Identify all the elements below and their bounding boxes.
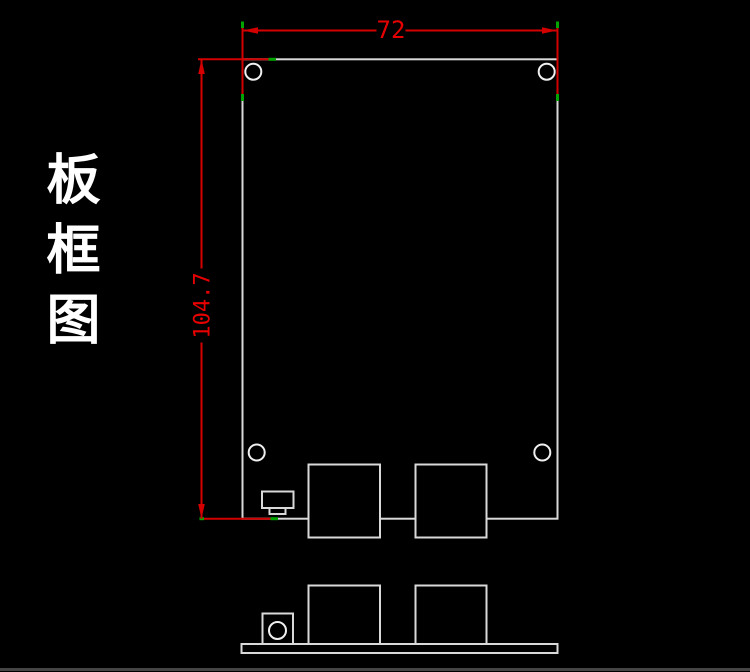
switch-tab (270, 508, 286, 514)
bottom-edge-line (0, 668, 750, 671)
usb-connector-left (309, 465, 381, 538)
pcb-edge-bar (242, 644, 558, 653)
board-outline (243, 59, 558, 518)
mounting-hole-top-left (245, 64, 261, 80)
switch-side (263, 614, 294, 646)
dimension-height: 104.7 (190, 59, 216, 518)
mounting-hole-bottom-left (249, 445, 265, 461)
arrowhead-top (198, 59, 205, 74)
switch-body (262, 492, 294, 509)
height-dimension-label: 104.7 (191, 272, 216, 338)
arrowhead-left (243, 27, 258, 34)
height-dimension-label-group: 104.7 (190, 269, 216, 343)
arrowhead-bottom (198, 504, 205, 519)
usb-connector-left-side (309, 586, 381, 646)
arrowhead-right (542, 27, 557, 34)
board-frame-drawing: 72 104.7 (0, 0, 750, 672)
width-dimension-label: 72 (377, 16, 406, 44)
front-view (198, 22, 558, 538)
dimension-width: 72 (243, 16, 557, 44)
side-view (242, 586, 558, 654)
mounting-hole-bottom-right (534, 445, 550, 461)
usb-connector-right-side (416, 586, 487, 646)
cad-canvas: 板框图 (0, 0, 750, 672)
mounting-hole-top-right (539, 64, 555, 80)
usb-connector-right (416, 465, 487, 538)
